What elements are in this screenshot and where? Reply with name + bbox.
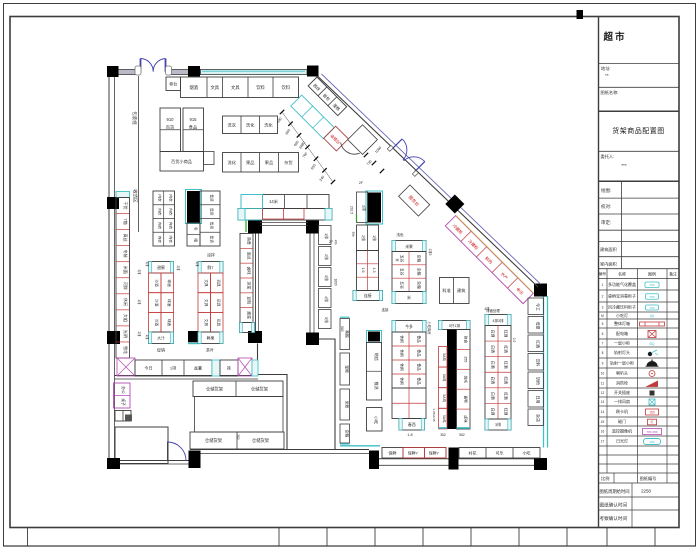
svg-text:2排: 2排: [176, 266, 181, 272]
svg-text:饮料: 饮料: [281, 84, 290, 91]
svg-text:奶粉: 奶粉: [536, 377, 541, 385]
svg-text:5A鸡: 5A鸡: [442, 415, 447, 423]
svg-text:3排: 3排: [145, 262, 150, 268]
svg-text:750: 750: [649, 283, 654, 287]
svg-text:5: 5: [602, 322, 604, 326]
svg-text:1.6: 1.6: [361, 268, 365, 273]
svg-text:可乐: 可乐: [496, 449, 504, 455]
svg-text:***: ***: [621, 163, 627, 169]
svg-text:委托人:: 委托人:: [601, 153, 615, 159]
svg-text:小吃灯: 小吃灯: [616, 312, 628, 318]
svg-text:地信: 地信: [374, 353, 380, 361]
svg-text:内衣: 内衣: [168, 194, 173, 202]
svg-text:桌子: 桌子: [121, 398, 126, 406]
svg-text:文具: 文具: [204, 299, 209, 307]
svg-text:鲜果: 鲜果: [207, 335, 215, 340]
svg-text:杂粮: 杂粮: [345, 430, 350, 438]
svg-text:2排: 2排: [137, 332, 142, 338]
svg-text:刷卡机: 刷卡机: [616, 408, 628, 414]
svg-text:卤味: 卤味: [463, 415, 468, 423]
svg-text:仓储货架: 仓储货架: [252, 437, 270, 444]
svg-text:审定:: 审定:: [601, 219, 611, 226]
svg-text:整体灯箱: 整体灯箱: [614, 320, 630, 326]
svg-text:食品: 食品: [417, 349, 422, 357]
svg-text:豆制: 豆制: [247, 296, 252, 304]
svg-text:洗化: 洗化: [246, 121, 255, 128]
svg-text:13: 13: [601, 400, 605, 404]
svg-text:桌柄宝消毒柜子: 桌柄宝消毒柜子: [608, 293, 636, 299]
svg-text:熟食: 熟食: [247, 237, 252, 245]
svg-text:杂货: 杂货: [536, 414, 541, 422]
svg-text:面点: 面点: [247, 252, 252, 260]
svg-text:大汁: 大汁: [157, 335, 165, 340]
svg-text:母婴: 母婴: [536, 322, 541, 330]
svg-text:杂货: 杂货: [284, 159, 292, 166]
svg-text:米面: 米面: [123, 266, 129, 274]
svg-text:291.5: 291.5: [350, 206, 354, 214]
svg-text:沙酒: 沙酒: [155, 319, 160, 327]
svg-text:T恤: T恤: [123, 218, 129, 224]
svg-text:17: 17: [601, 440, 605, 444]
svg-text:货架商品配置图: 货架商品配置图: [612, 126, 665, 135]
svg-text:16: 16: [601, 430, 605, 434]
svg-text:780 450: 780 450: [647, 430, 658, 434]
svg-text:促销: 促销: [157, 347, 165, 353]
svg-text:米粉: 米粉: [345, 401, 350, 409]
svg-text:仓储货架: 仓储货架: [205, 437, 223, 444]
svg-text:茶叶: 茶叶: [206, 347, 214, 353]
svg-text:3排: 3排: [495, 422, 501, 427]
svg-text:3排: 3排: [324, 275, 329, 281]
svg-text:2排: 2排: [362, 205, 367, 211]
svg-text:消防栓: 消防栓: [616, 380, 628, 386]
svg-text:米果: 米果: [405, 244, 413, 249]
svg-text:收货区: 收货区: [132, 189, 139, 203]
svg-text:1排: 1排: [145, 335, 150, 341]
svg-text:图例: 图例: [648, 271, 656, 277]
svg-text:洗化: 洗化: [264, 121, 273, 128]
svg-text:红酒: 红酒: [504, 408, 509, 416]
svg-text:日光灯: 日光灯: [616, 438, 628, 444]
svg-text:今多: 今多: [405, 324, 413, 329]
svg-text:3: 3: [602, 306, 604, 310]
svg-text:9%: 9%: [351, 232, 355, 237]
svg-text:玩具: 玩具: [217, 299, 222, 307]
svg-text:休闲: 休闲: [400, 363, 405, 371]
svg-text:真丝: 真丝: [123, 234, 129, 242]
svg-text:卤味: 卤味: [247, 267, 252, 275]
svg-text:盆暑: 盆暑: [194, 365, 202, 371]
svg-text:考察确认时间: 考察确认时间: [600, 515, 628, 522]
svg-text:352: 352: [440, 433, 446, 437]
svg-text:910: 910: [167, 117, 175, 122]
svg-text:1排: 1排: [170, 365, 176, 371]
svg-text:保鲜Y: 保鲜Y: [429, 451, 440, 456]
svg-text:文具: 文具: [204, 319, 209, 327]
svg-text:酱鸭: 酱鸭: [463, 395, 468, 403]
svg-text:轨射灯头: 轨射灯头: [614, 349, 630, 355]
svg-text:小吃: 小吃: [523, 449, 531, 455]
svg-text:内衣: 内衣: [158, 208, 163, 216]
svg-text:科准: 科准: [442, 287, 450, 294]
svg-text:小吃: 小吃: [374, 416, 380, 424]
svg-text:1.8: 1.8: [407, 433, 412, 437]
svg-text:校对:: 校对:: [601, 203, 611, 210]
svg-text:白酒: 白酒: [491, 392, 496, 400]
svg-text:球酒: 球酒: [167, 299, 172, 307]
svg-text:地址:: 地址:: [601, 65, 611, 71]
svg-text:食品: 食品: [417, 363, 422, 371]
svg-text:2排: 2排: [361, 235, 366, 241]
svg-text:仓储货架: 仓储货架: [206, 385, 224, 392]
svg-text:750: 750: [649, 306, 654, 310]
svg-text:玩具: 玩具: [217, 319, 222, 327]
svg-text:沙酒: 沙酒: [155, 279, 160, 287]
svg-text:400: 400: [649, 440, 654, 444]
svg-text:11: 11: [601, 382, 605, 386]
svg-text:酱菜: 酱菜: [247, 311, 252, 319]
svg-text:仓储货架: 仓储货架: [251, 385, 269, 392]
svg-text:烧鸡: 烧鸡: [463, 376, 468, 384]
svg-text:杂粮: 杂粮: [417, 268, 422, 276]
svg-text:图纸编号: 图纸编号: [640, 475, 657, 482]
svg-text:M: M: [601, 314, 604, 318]
svg-text:2258: 2258: [641, 489, 651, 494]
svg-text:春西: 春西: [408, 422, 416, 427]
svg-text:售货: 售货: [210, 236, 215, 244]
svg-text:排面处理: 排面处理: [486, 308, 500, 313]
svg-text:5A鸡: 5A鸡: [442, 394, 447, 402]
svg-text:图纸名称:: 图纸名称:: [601, 89, 619, 96]
svg-text:750: 750: [649, 295, 654, 299]
svg-text:连接: 连接: [382, 307, 389, 312]
svg-text:杂粮: 杂粮: [417, 281, 422, 289]
svg-text:2排: 2排: [195, 262, 200, 268]
svg-text:村花: 村花: [469, 449, 477, 455]
svg-text:15: 15: [601, 420, 605, 424]
svg-text:备注: 备注: [669, 272, 677, 277]
svg-text:白酒: 白酒: [491, 377, 496, 385]
svg-text:1排: 1排: [324, 233, 329, 239]
svg-text:五谷: 五谷: [400, 255, 405, 263]
svg-text:沙酒: 沙酒: [155, 299, 160, 307]
svg-text:图纸周期给时间: 图纸周期给时间: [600, 488, 630, 495]
svg-text:白酒: 白酒: [491, 330, 496, 338]
svg-text:休闲: 休闲: [400, 335, 405, 343]
svg-text:多功能气化覆盖: 多功能气化覆盖: [608, 281, 636, 287]
svg-text:售货: 售货: [210, 194, 215, 202]
svg-text:球酒: 球酒: [167, 319, 172, 327]
svg-text:日用: 日用: [536, 396, 541, 404]
svg-text:包装组: 包装组: [131, 111, 138, 125]
svg-text:光明: 光明: [123, 330, 129, 338]
svg-text:售货: 售货: [210, 208, 215, 216]
svg-text:1600: 1600: [334, 278, 338, 285]
svg-text:五谷: 五谷: [400, 268, 405, 276]
svg-text:监控摄像机: 监控摄像机: [612, 428, 632, 434]
svg-text:内衣: 内衣: [168, 208, 173, 216]
svg-text:推洗: 推洗: [374, 382, 380, 390]
svg-text:2: 2: [602, 295, 604, 299]
svg-text:绘图:: 绘图:: [601, 187, 611, 194]
svg-text:甜蜜: 甜蜜: [157, 265, 165, 270]
svg-text:10: 10: [601, 372, 605, 376]
svg-text:大姐: 大姐: [123, 314, 129, 322]
svg-text:红酒: 红酒: [504, 345, 509, 353]
svg-text:宠物: 宠物: [345, 365, 350, 373]
svg-text:12: 12: [601, 391, 605, 395]
svg-text:鲜T: 鲜T: [207, 265, 214, 270]
svg-text:内衣: 内衣: [158, 236, 163, 244]
svg-text:熟食: 熟食: [463, 336, 468, 344]
svg-text:浅色: 浅色: [396, 232, 404, 237]
svg-text:保鲜Y: 保鲜Y: [408, 451, 419, 456]
svg-text:灯: 灯: [650, 419, 653, 424]
svg-text:超市: 超市: [602, 31, 626, 43]
svg-text:凉拌: 凉拌: [207, 252, 215, 258]
svg-text:冬装: 冬装: [123, 250, 129, 258]
svg-text:食品: 食品: [417, 377, 422, 385]
svg-text:喇叭头: 喇叭头: [616, 370, 628, 376]
svg-text:眠: 眠: [194, 238, 198, 242]
svg-text:百货: 百货: [166, 124, 174, 131]
svg-text:小吃库房: 小吃库房: [427, 321, 432, 335]
svg-text:比例: 比例: [601, 475, 609, 482]
svg-text:今日: 今日: [145, 365, 153, 371]
svg-text:红酒: 红酒: [504, 377, 509, 385]
svg-text:名称: 名称: [618, 271, 626, 277]
svg-text:915: 915: [190, 117, 198, 122]
svg-text:内衣: 内衣: [158, 222, 163, 230]
svg-text:14米: 14米: [269, 198, 279, 205]
svg-text:**: **: [605, 73, 609, 79]
svg-text:5排: 5排: [324, 317, 329, 323]
svg-text:红酒: 红酒: [504, 361, 509, 369]
svg-text:袜: 袜: [227, 365, 231, 371]
svg-text:室内面积: 室内面积: [600, 261, 617, 268]
svg-text:饮料: 饮料: [536, 359, 541, 367]
svg-text:休闲: 休闲: [400, 377, 405, 385]
svg-text:办公: 办公: [121, 386, 126, 394]
svg-text:狗粮: 狗粮: [345, 330, 350, 338]
svg-text:内衣: 内衣: [168, 222, 173, 230]
svg-text:轨射一层小柜: 轨射一层小柜: [610, 360, 634, 366]
svg-text:米: 米: [407, 295, 411, 300]
svg-text:今工: 今工: [536, 303, 541, 311]
svg-text:建筑: 建筑: [457, 287, 466, 294]
svg-text:6: 6: [602, 332, 604, 336]
svg-text:一排风扇: 一排风扇: [614, 398, 630, 404]
svg-text:5只1排: 5只1排: [449, 323, 461, 328]
svg-text:4%: 4%: [334, 240, 338, 245]
svg-text:一层小柜: 一层小柜: [614, 340, 630, 346]
svg-text:文具: 文具: [210, 84, 219, 91]
svg-text:4排3排: 4排3排: [492, 318, 504, 323]
svg-text:14: 14: [601, 410, 605, 414]
svg-text:食品: 食品: [189, 124, 197, 131]
svg-text:饮料: 饮料: [256, 84, 265, 91]
svg-text:1.3: 1.3: [372, 268, 376, 273]
svg-text:红酒: 红酒: [504, 330, 509, 338]
svg-text:雪花: 雪花: [123, 346, 129, 354]
svg-text:红酒: 红酒: [536, 340, 541, 348]
svg-text:4排: 4排: [324, 296, 329, 302]
svg-text:休闲: 休闲: [123, 298, 129, 306]
svg-text:凉菜: 凉菜: [247, 282, 252, 290]
svg-text:1: 1: [602, 283, 604, 287]
svg-text:1排: 1排: [137, 300, 142, 306]
svg-text:洗化: 洗化: [228, 159, 237, 166]
svg-text:8: 8: [602, 351, 604, 355]
svg-text:图纸确认时间: 图纸确认时间: [600, 502, 628, 509]
svg-text:冬: 冬: [194, 227, 199, 231]
svg-text:编号: 编号: [599, 271, 607, 276]
svg-text:580: 580: [340, 326, 344, 332]
svg-text:保鲜: 保鲜: [389, 449, 397, 455]
svg-text:355: 355: [463, 356, 467, 362]
svg-text:红酒: 红酒: [504, 392, 509, 400]
svg-text:百货小商品: 百货小商品: [171, 158, 192, 165]
svg-text:文具: 文具: [204, 279, 209, 287]
svg-text:5A鸡: 5A鸡: [442, 374, 447, 382]
svg-text:杂粮: 杂粮: [417, 255, 422, 263]
svg-text:五谷: 五谷: [400, 281, 405, 289]
svg-text:休闲: 休闲: [400, 349, 405, 357]
svg-text:烟酒: 烟酒: [189, 84, 198, 91]
svg-text:建筑面积: 建筑面积: [600, 246, 617, 253]
svg-text:2排5: 2排5: [428, 249, 433, 256]
svg-text:内衣: 内衣: [158, 194, 163, 202]
svg-text:2排: 2排: [324, 254, 329, 260]
svg-text:9: 9: [602, 362, 604, 366]
svg-text:2.5: 2.5: [512, 338, 516, 343]
svg-text:称台: 称台: [169, 80, 177, 86]
svg-text:配电箱: 配电箱: [616, 330, 628, 336]
svg-text:磁门: 磁门: [618, 418, 626, 424]
svg-text:150: 150: [649, 410, 655, 414]
svg-text:白酒: 白酒: [491, 361, 496, 369]
svg-text:球酒: 球酒: [167, 279, 172, 287]
svg-text:5A鸡: 5A鸡: [442, 353, 447, 361]
svg-text:内衣: 内衣: [168, 236, 173, 244]
svg-text:262: 262: [236, 434, 240, 440]
svg-text:河鲜: 河鲜: [123, 282, 129, 290]
svg-text:1排: 1排: [372, 235, 377, 241]
svg-text:1.35x0.35: 1.35x0.35: [432, 408, 436, 422]
svg-text:售货: 售货: [210, 222, 215, 230]
svg-text:连接: 连接: [364, 293, 372, 298]
svg-text:白酒: 白酒: [491, 345, 496, 353]
svg-text:开关插座: 开关插座: [614, 389, 630, 395]
svg-text:562: 562: [459, 433, 465, 437]
svg-text:食品: 食品: [417, 335, 422, 343]
svg-text:洗衣: 洗衣: [228, 121, 237, 128]
svg-text:白酒: 白酒: [491, 408, 496, 416]
svg-text:干货: 干货: [123, 202, 129, 210]
svg-text:文具: 文具: [231, 84, 240, 91]
svg-text:玩具: 玩具: [217, 279, 222, 287]
svg-text:7: 7: [602, 342, 604, 346]
svg-text:M: M: [650, 314, 654, 319]
svg-text:风冷藏饮料柜子: 风冷藏饮料柜子: [608, 304, 636, 310]
svg-text:BQ: BQ: [650, 342, 655, 346]
svg-text:3排: 3排: [137, 270, 142, 276]
